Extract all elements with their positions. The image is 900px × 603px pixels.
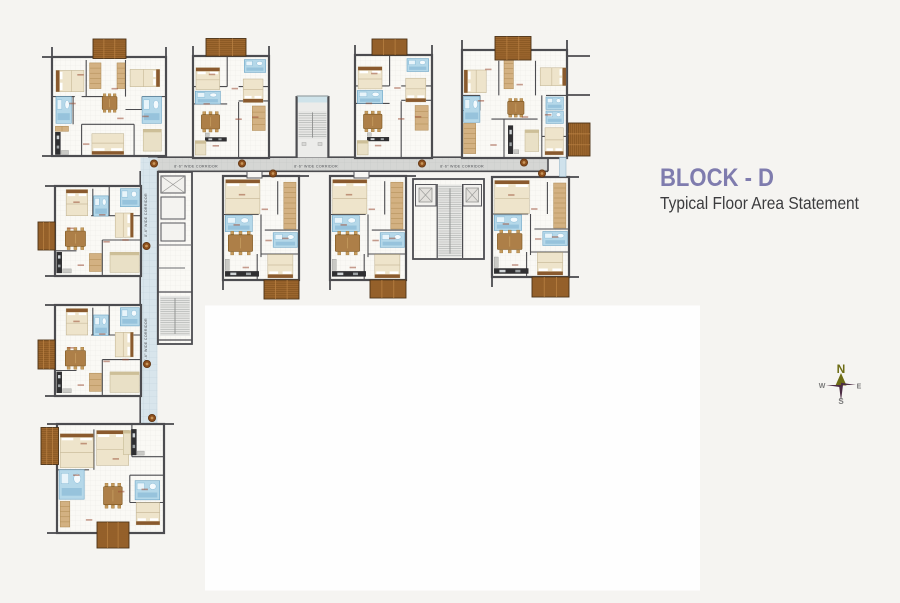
svg-text:8'-6" WIDE CORRIDOR: 8'-6" WIDE CORRIDOR (174, 165, 218, 169)
svg-text:8'-6" WIDE CORRIDOR: 8'-6" WIDE CORRIDOR (294, 165, 338, 169)
svg-text:Typical Floor Area Statement: Typical Floor Area Statement (660, 193, 859, 213)
svg-text:E: E (857, 384, 862, 391)
svg-text:8'-6" WIDE CORRIDOR: 8'-6" WIDE CORRIDOR (440, 165, 484, 169)
svg-text:BLOCK - D: BLOCK - D (660, 164, 774, 192)
svg-text:W: W (819, 383, 826, 390)
svg-text:8'-6" WIDE CORRIDOR: 8'-6" WIDE CORRIDOR (144, 318, 148, 362)
svg-text:S: S (838, 397, 844, 406)
svg-text:8'-6" WIDE CORRIDOR: 8'-6" WIDE CORRIDOR (144, 193, 148, 237)
